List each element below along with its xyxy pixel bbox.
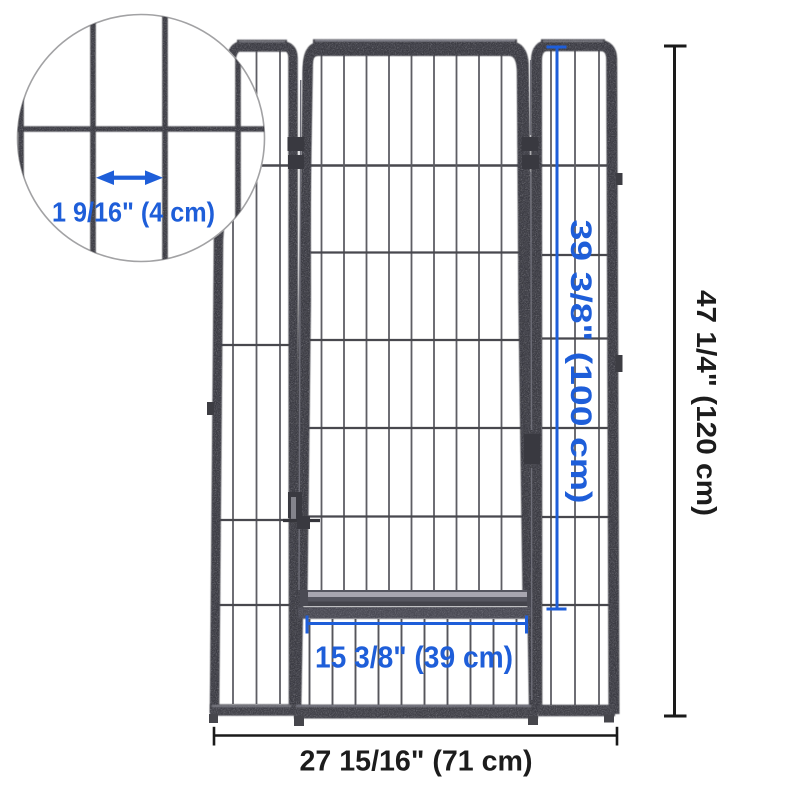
svg-text:1 9/16" (4 cm): 1 9/16" (4 cm): [52, 197, 215, 228]
svg-text:15 3/8" (39 cm): 15 3/8" (39 cm): [315, 640, 513, 675]
svg-text:27 15/16" (71 cm): 27 15/16" (71 cm): [300, 746, 533, 778]
svg-text:39 3/8" (100 cm): 39 3/8" (100 cm): [564, 220, 597, 504]
svg-text:47 1/4" (120 cm): 47 1/4" (120 cm): [691, 290, 722, 516]
